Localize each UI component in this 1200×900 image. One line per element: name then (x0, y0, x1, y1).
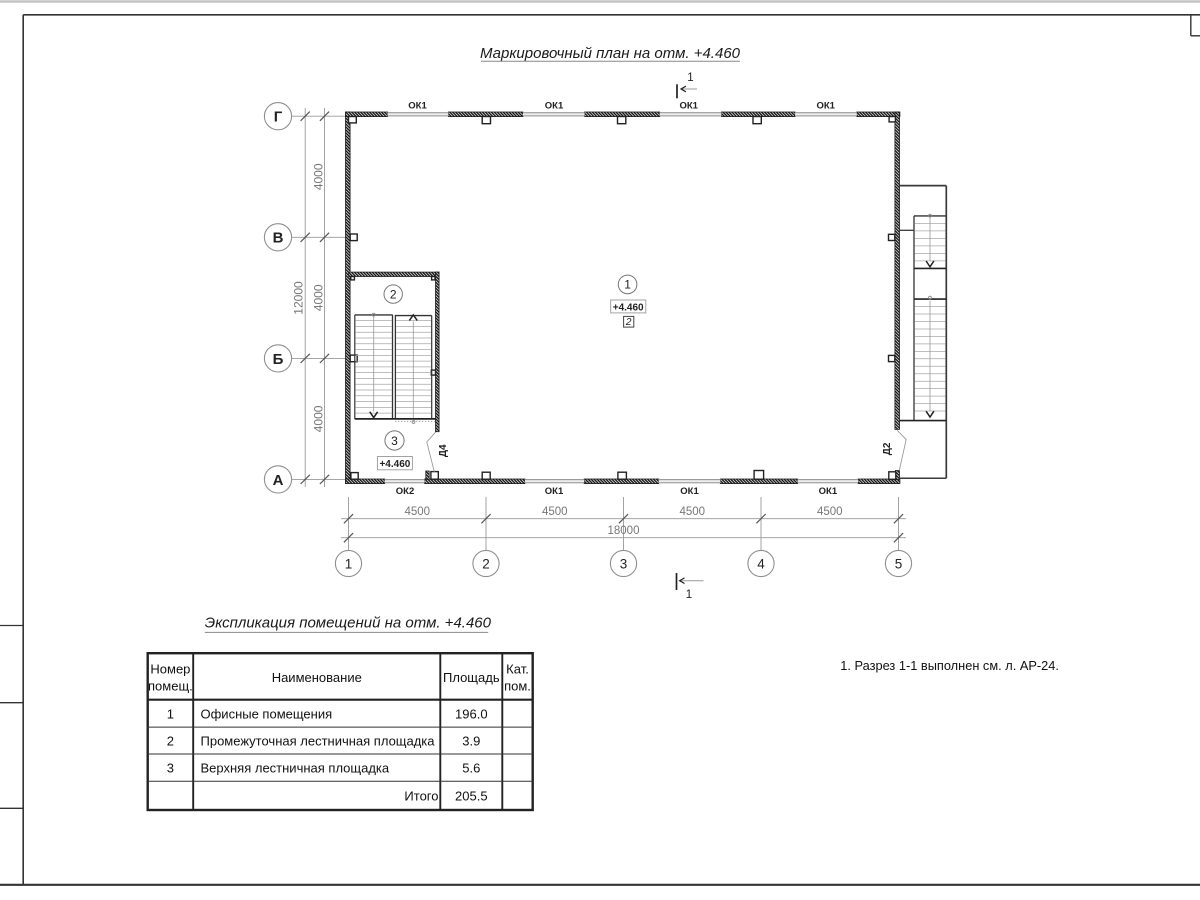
svg-text:Промежуточная лестничная площа: Промежуточная лестничная площадка (201, 734, 436, 749)
svg-text:Д2: Д2 (882, 442, 893, 455)
svg-text:1: 1 (624, 278, 631, 292)
svg-text:ОК1: ОК1 (545, 101, 564, 112)
svg-text:4: 4 (757, 556, 765, 571)
svg-text:3.9: 3.9 (462, 734, 480, 749)
svg-text:18000: 18000 (608, 525, 640, 537)
svg-text:4000: 4000 (311, 405, 325, 432)
svg-text:4000: 4000 (311, 163, 325, 190)
svg-text:Д4: Д4 (438, 444, 449, 457)
svg-text:3: 3 (167, 761, 174, 776)
svg-text:4000: 4000 (311, 284, 325, 311)
svg-text:+4.460: +4.460 (379, 459, 410, 470)
svg-text:196.0: 196.0 (455, 707, 488, 722)
svg-text:2: 2 (390, 287, 397, 301)
svg-text:1: 1 (687, 72, 693, 84)
svg-text:В: В (273, 230, 284, 247)
svg-text:ОК1: ОК1 (819, 486, 838, 497)
svg-text:1: 1 (345, 556, 353, 571)
svg-text:4500: 4500 (817, 506, 843, 518)
svg-text:12000: 12000 (291, 281, 305, 315)
svg-text:ОК1: ОК1 (680, 486, 699, 497)
svg-text:1. Разрез 1-1 выполнен см. л.: 1. Разрез 1-1 выполнен см. л. АР-24. (840, 658, 1059, 673)
svg-text:Наименование: Наименование (272, 670, 362, 685)
svg-text:пом.: пом. (504, 679, 531, 694)
svg-text:ОК1: ОК1 (816, 101, 835, 112)
svg-text:ОК1: ОК1 (679, 101, 698, 112)
svg-text:Площадь: Площадь (443, 670, 500, 685)
svg-text:Б: Б (273, 351, 284, 368)
svg-text:Г: Г (274, 109, 283, 126)
svg-text:Номер: Номер (150, 662, 190, 677)
svg-text:Маркировочный план на отм. +4.: Маркировочный план на отм. +4.460 (480, 45, 741, 62)
svg-text:5.6: 5.6 (462, 761, 480, 776)
svg-text:205.5: 205.5 (455, 789, 488, 804)
svg-text:А: А (273, 472, 284, 489)
svg-text:3: 3 (620, 556, 628, 571)
svg-text:Итого: Итого (404, 789, 438, 804)
svg-text:ОК1: ОК1 (408, 101, 427, 112)
svg-text:1: 1 (167, 707, 174, 722)
svg-text:ОК1: ОК1 (545, 486, 564, 497)
svg-text:4500: 4500 (542, 506, 568, 518)
svg-text:Верхняя лестничная площадка: Верхняя лестничная площадка (201, 761, 390, 776)
svg-text:5: 5 (895, 556, 903, 571)
svg-text:ОК2: ОК2 (396, 486, 414, 497)
svg-text:Экспликация помещений на отм.: Экспликация помещений на отм. +4.460 (205, 615, 492, 632)
svg-text:2: 2 (167, 734, 174, 749)
svg-text:4500: 4500 (680, 506, 706, 518)
svg-text:4500: 4500 (405, 506, 431, 518)
svg-text:2: 2 (625, 317, 632, 328)
svg-text:+4.460: +4.460 (613, 302, 644, 313)
svg-text:2: 2 (482, 556, 490, 571)
svg-text:Кат.: Кат. (506, 662, 529, 677)
svg-text:Офисные помещения: Офисные помещения (201, 707, 333, 722)
svg-text:помещ.: помещ. (148, 679, 193, 694)
svg-text:1: 1 (686, 589, 692, 601)
svg-text:3: 3 (391, 434, 398, 448)
